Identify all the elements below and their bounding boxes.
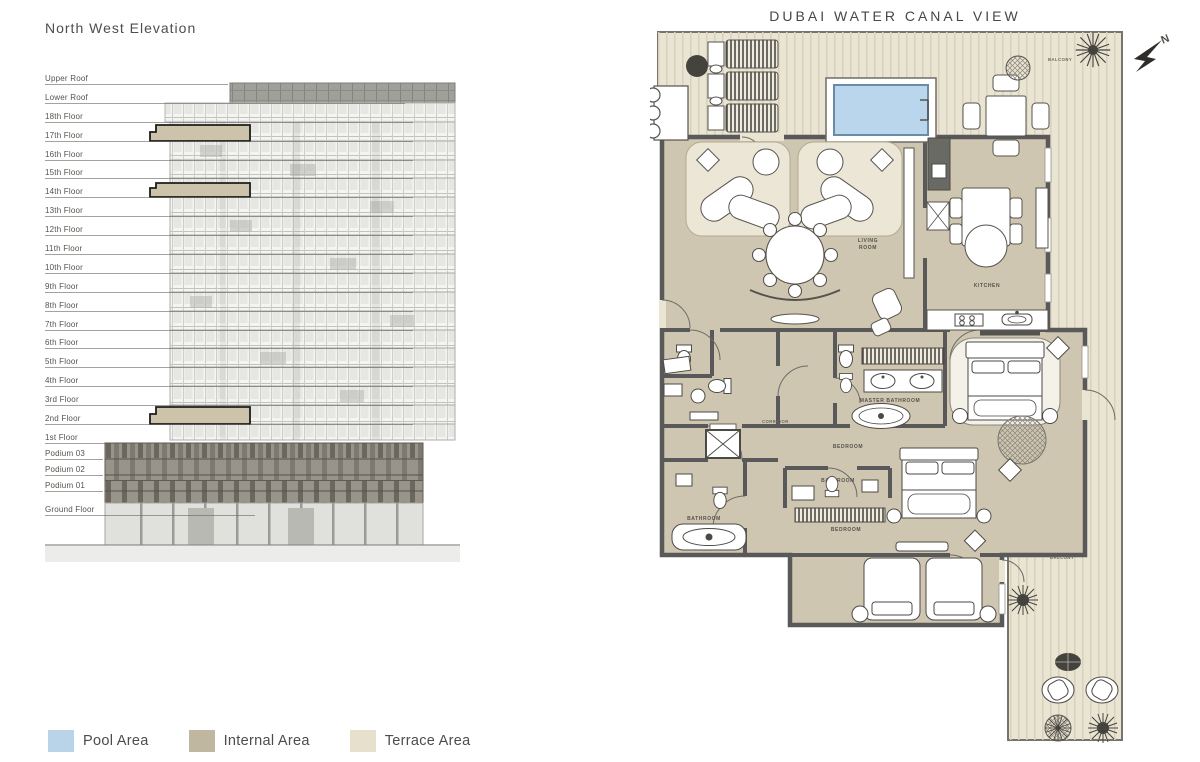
balcony-top-label: BALCONY (1048, 57, 1072, 62)
floor-label-row: 5th Floor (45, 355, 413, 368)
floor-label: 2nd Floor (45, 414, 81, 423)
floorplan-drawing: BALCONY N (650, 28, 1190, 750)
floor-label-row: Podium 03 (45, 447, 103, 460)
floor-label: 9th Floor (45, 282, 78, 291)
floor-label-row: 4th Floor (45, 374, 413, 387)
floor-label-row: 3rd Floor (45, 393, 413, 406)
floor-label-row: 13th Floor (45, 204, 413, 217)
wardrobe-strip (795, 508, 885, 522)
internal-area-swatch (189, 730, 215, 752)
floor-label: 16th Floor (45, 150, 83, 159)
architectural-sheet: North West Elevation (0, 0, 1200, 762)
floor-label: 6th Floor (45, 338, 78, 347)
legend-label: Pool Area (83, 733, 149, 749)
floor-label: Ground Floor (45, 505, 95, 514)
living-room-label: LIVING (858, 238, 878, 244)
floor-label-row: 16th Floor (45, 148, 413, 161)
floor-label-row: 7th Floor (45, 318, 413, 331)
pool-water (834, 85, 928, 135)
bedroom-middle-label: BEDROOM (833, 444, 863, 450)
shaft-closet (706, 424, 740, 458)
floor-label-row: Lower Roof (45, 91, 405, 104)
living-room-rug-right (797, 142, 902, 236)
podium-block (105, 443, 423, 503)
floor-label: 14th Floor (45, 187, 83, 196)
floor-label-row: 1st Floor (45, 431, 105, 444)
master-bathroom-label: MASTER BATHROOM (860, 398, 921, 404)
floor-label: 3rd Floor (45, 395, 79, 404)
floor-label: Podium 03 (45, 449, 85, 458)
dining-table (753, 213, 838, 298)
floor-label-row: Upper Roof (45, 72, 228, 85)
elevation-title: North West Elevation (45, 20, 196, 36)
floor-label-row: 2nd Floor (45, 412, 413, 425)
tv-console (904, 148, 914, 278)
floor-label: 11th Floor (45, 244, 82, 253)
potted-plant (1006, 56, 1030, 80)
floor-label-row: 6th Floor (45, 336, 413, 349)
large-plant (1076, 33, 1111, 68)
floor-label: 7th Floor (45, 320, 78, 329)
pool-area-swatch (48, 730, 74, 752)
floor-label-row: Podium 02 (45, 463, 103, 476)
tv-unit (980, 332, 1040, 336)
floor-label: 15th Floor (45, 168, 83, 177)
floor-label-row: 14th Floor (45, 185, 413, 198)
floor-label-row: 8th Floor (45, 299, 413, 312)
headboard (966, 342, 1044, 358)
wardrobe-strip (862, 348, 944, 364)
legend-item-terrace: Terrace Area (350, 730, 471, 752)
floor-label: 18th Floor (45, 112, 83, 121)
floor-label: 4th Floor (45, 376, 78, 385)
floor-label-row: 12th Floor (45, 223, 413, 236)
floor-label-row: 17th Floor (45, 129, 413, 142)
living-room-rug-left (686, 142, 790, 236)
floor-label: Upper Roof (45, 74, 88, 83)
sun-loungers (708, 40, 778, 132)
corridor-label: CORRIDOR (762, 419, 789, 424)
legend-label: Terrace Area (385, 733, 471, 749)
round-rug (998, 416, 1046, 464)
floor-label: 13th Floor (45, 206, 83, 215)
floor-label: 10th Floor (45, 263, 83, 272)
north-arrow-icon: N (1134, 33, 1171, 72)
terrace-area-swatch (350, 730, 376, 752)
bathroom-bottom-left-label: BATHROOM (687, 516, 721, 522)
floor-label: 8th Floor (45, 301, 78, 310)
floor-label: 12th Floor (45, 225, 83, 234)
floor-label-row: 11th Floor (45, 242, 413, 255)
legend-label: Internal Area (224, 733, 310, 749)
floor-label-row: 15th Floor (45, 166, 413, 179)
floor-label-row: Ground Floor (45, 503, 255, 516)
floor-label: 5th Floor (45, 357, 78, 366)
floor-label-row: 18th Floor (45, 110, 413, 123)
floor-label: 17th Floor (45, 131, 83, 140)
legend-item-pool: Pool Area (48, 730, 149, 752)
swimming-pool (826, 78, 936, 142)
floor-label-row: 9th Floor (45, 280, 413, 293)
legend-item-internal: Internal Area (189, 730, 310, 752)
floor-label-row: Podium 01 (45, 479, 103, 492)
kitchen-label: KITCHEN (974, 283, 1000, 289)
floor-label: Lower Roof (45, 93, 88, 102)
terrace-plant (686, 55, 708, 77)
floor-label: Podium 02 (45, 465, 85, 474)
floorplan-title: DUBAI WATER CANAL VIEW (650, 8, 1140, 24)
bench (896, 542, 948, 551)
north-label: N (1159, 33, 1171, 47)
master-bedroom (950, 332, 1069, 426)
living-room-label-2: ROOM (859, 245, 877, 251)
legend: Pool Area Internal Area Terrace Area (48, 730, 511, 752)
console-ottoman (771, 314, 819, 324)
bedroom-bottom-label: BEDROOM (831, 527, 861, 533)
floor-label: 1st Floor (45, 433, 78, 442)
balcony-bottom-label: BALCONY (1050, 555, 1074, 560)
floor-label-row: 10th Floor (45, 261, 413, 274)
cooktop-icon (955, 314, 983, 326)
outdoor-console (650, 86, 688, 140)
floor-label: Podium 01 (45, 481, 85, 490)
